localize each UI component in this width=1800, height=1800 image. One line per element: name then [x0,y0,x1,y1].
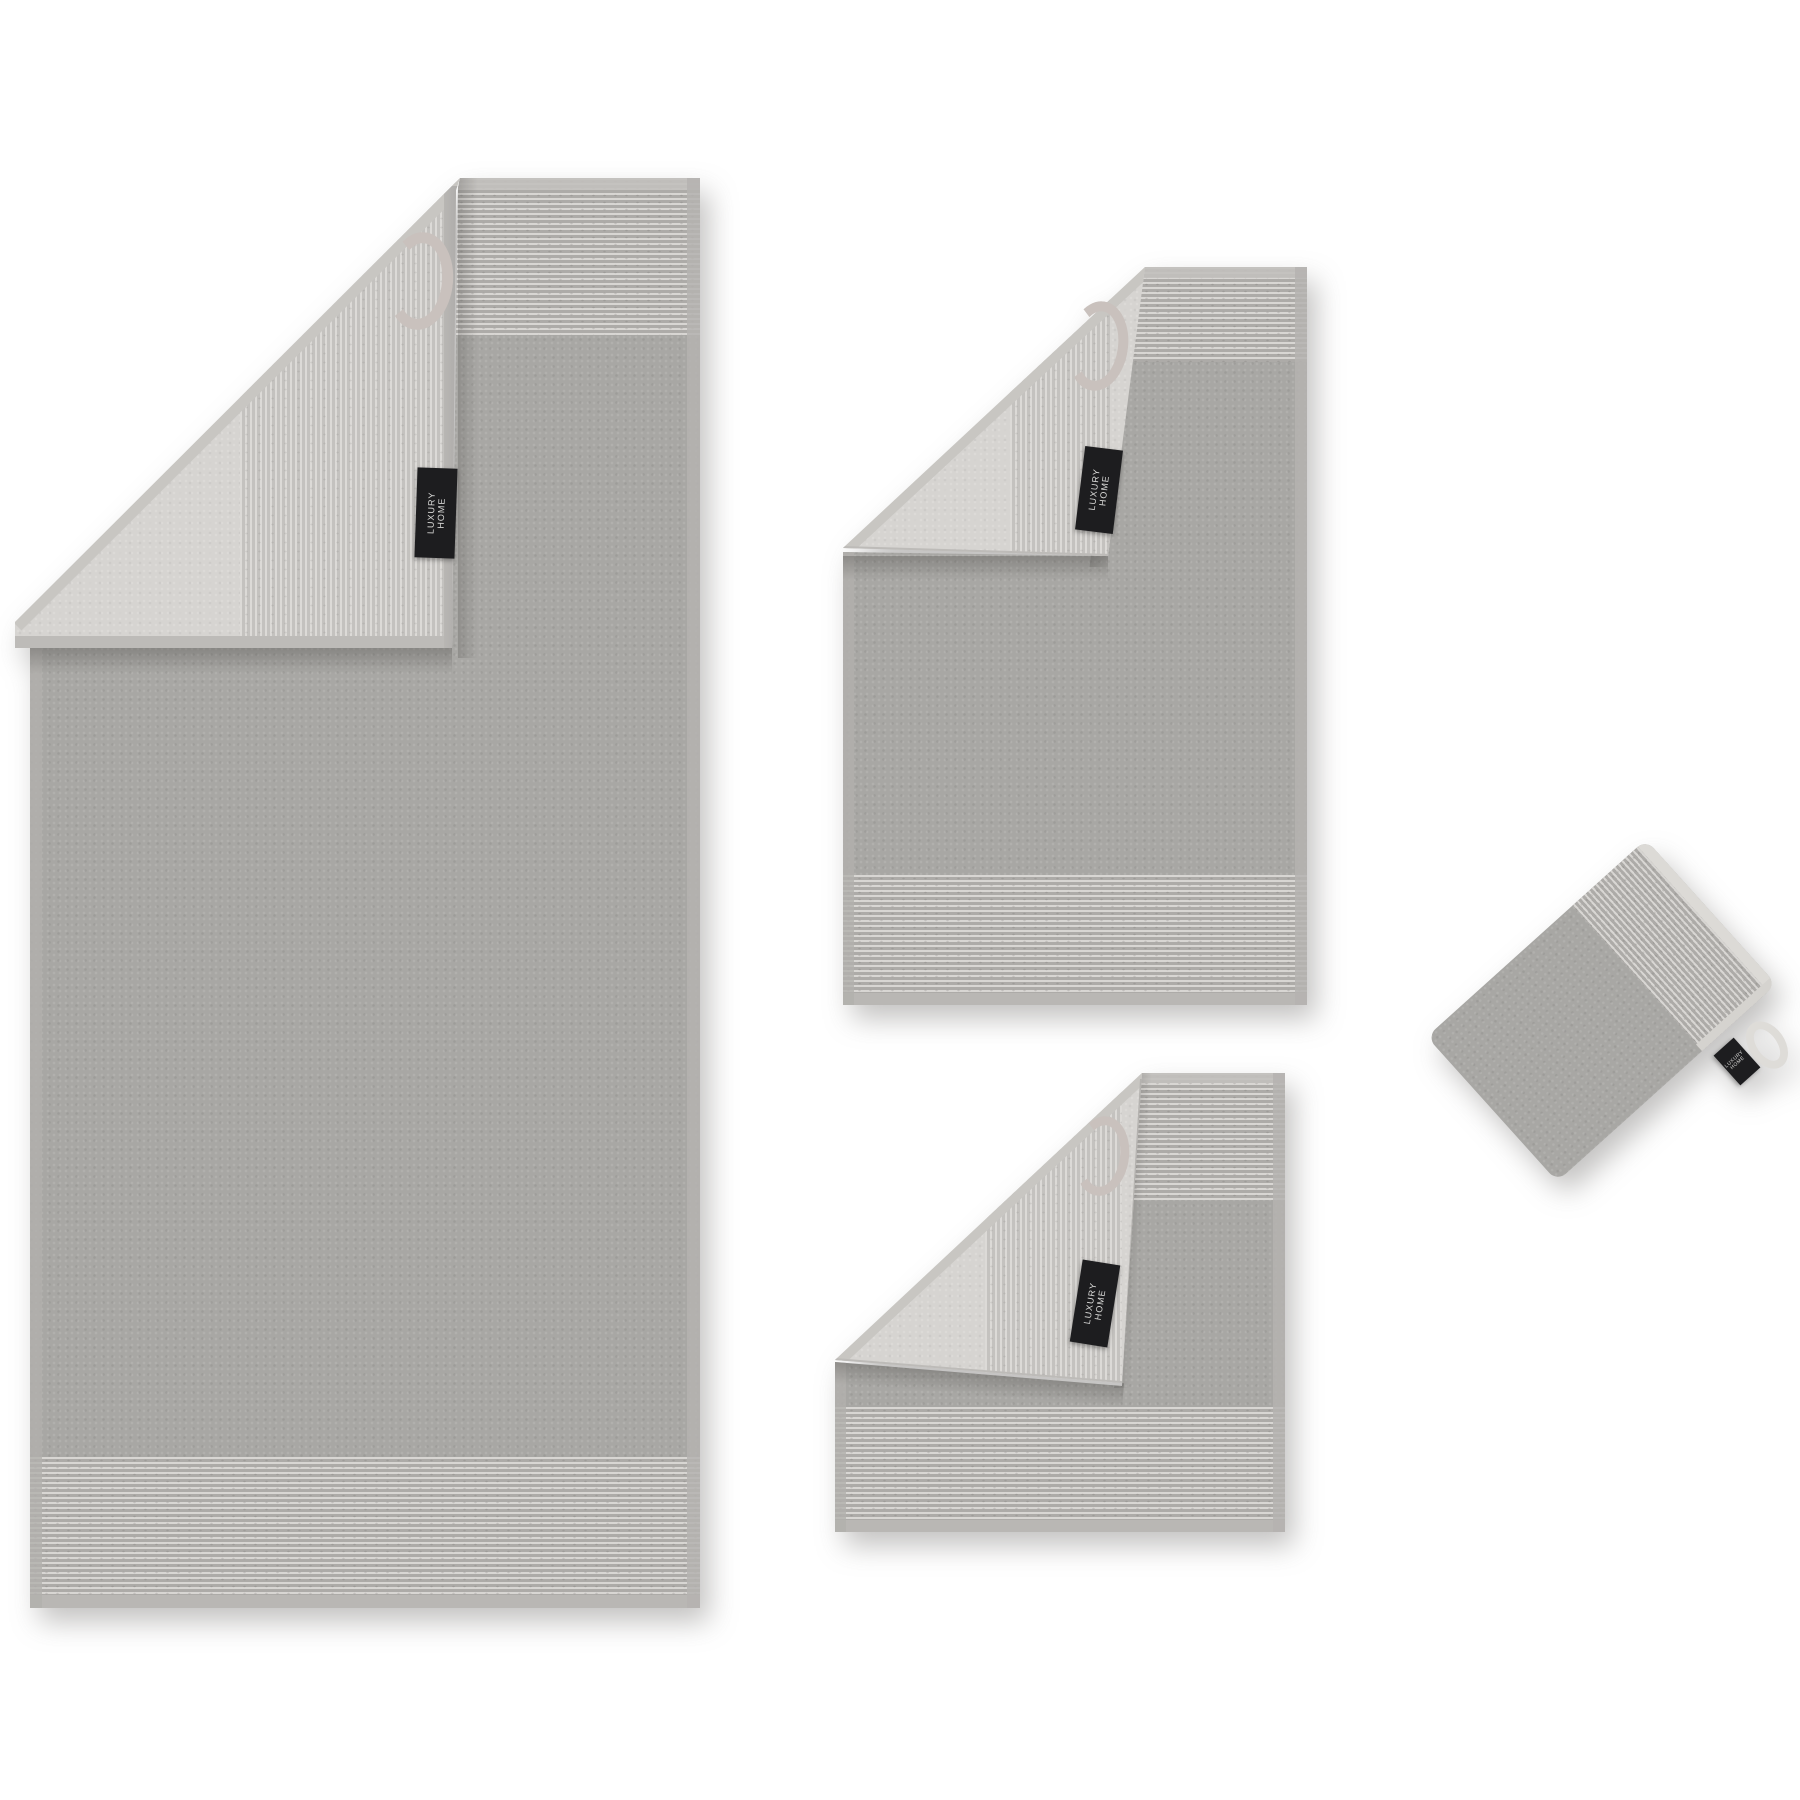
brand-label-text: LUXURY HOME [1725,1050,1749,1073]
hand-towel-top-edging [1135,267,1307,278]
brand-label: LUXURY HOME [414,467,457,558]
hand-towel-top-rib-band [1130,267,1307,362]
fold-shadow [30,648,452,674]
wash-mitt-body [1427,839,1777,1181]
guest-towel-top-rib-band [1130,1073,1285,1200]
hand-towel-bottom-rib-band [843,875,1307,993]
brand-label-text: LUXURY HOME [1087,468,1112,512]
bath-towel-bottom-edging [30,1595,700,1608]
wash-mitt: LUXURY HOME [1430,830,1790,1200]
guest-towel: LUXURY HOME [835,1071,1285,1532]
bath-towel-top-rib-band [445,178,700,335]
guest-towel-right-edging [1273,1073,1285,1532]
guest-towel-top-edging [1135,1073,1285,1083]
hand-towel-left-edging [843,552,854,1005]
bath-towel-top-edging [445,178,700,190]
fold-bottom-edging [15,636,452,648]
bath-towel-right-edging [687,178,700,1608]
guest-towel-bottom-edging [835,1520,1285,1532]
brand-label-text: LUXURY HOME [425,491,446,534]
hand-towel-bottom-edging [843,993,1307,1005]
fold-shadow [843,556,1108,580]
guest-towel-bottom-rib-band [835,1407,1285,1520]
bath-towel: LUXURY HOME [15,178,700,1608]
bath-towel-left-edging [30,648,42,1608]
guest-towel-left-edging [835,1362,846,1532]
brand-label-text: LUXURY HOME [1082,1281,1108,1326]
hand-towel-right-edging [1295,267,1307,1005]
bath-towel-bottom-rib-band [30,1457,700,1597]
towel-set-product-photo: LUXURY HOME LUXURY HOME [0,0,1800,1800]
crease-shadow [458,178,478,658]
hand-towel: LUXURY HOME [840,265,1307,1005]
